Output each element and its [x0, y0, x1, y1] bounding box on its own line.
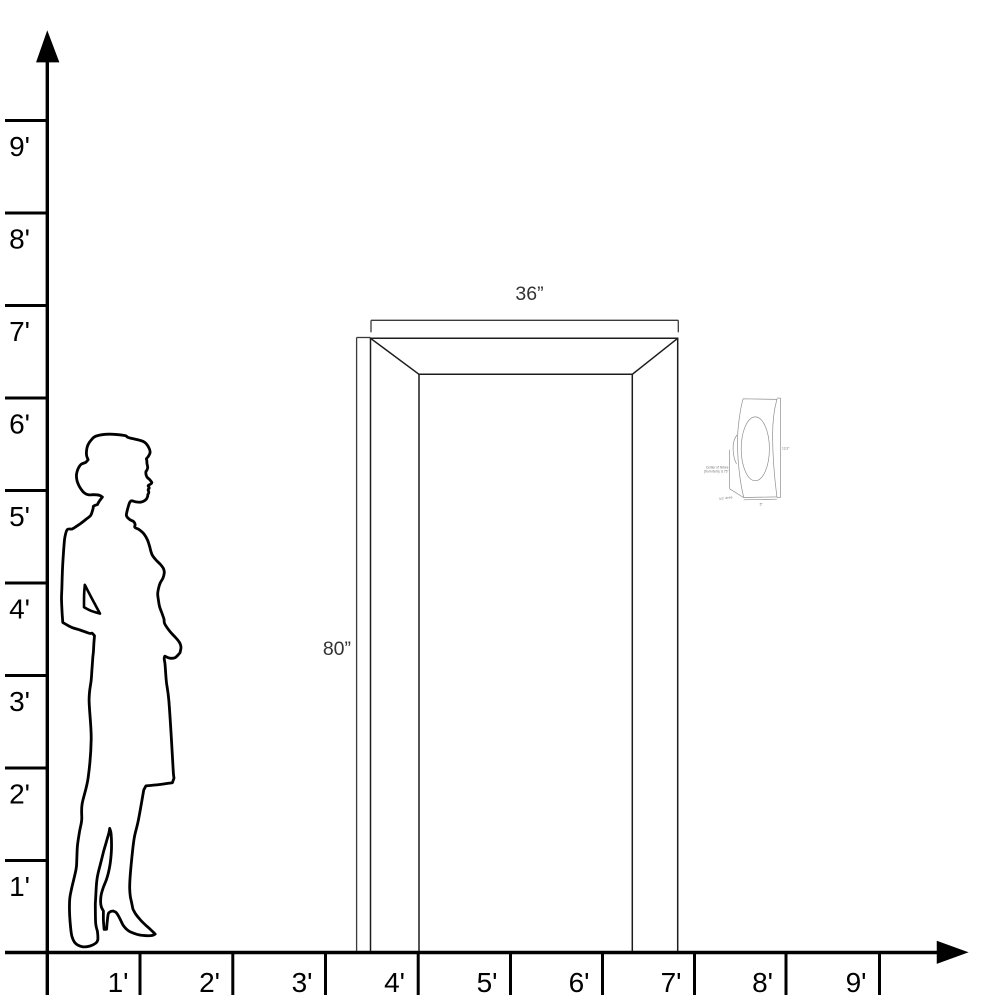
svg-text:7': 7' [9, 316, 30, 347]
svg-text:9': 9' [9, 131, 30, 162]
svg-text:8': 8' [752, 967, 773, 998]
svg-text:6': 6' [569, 967, 590, 998]
svg-text:5”: 5” [760, 503, 763, 507]
svg-text:8': 8' [9, 224, 30, 255]
svg-text:7': 7' [661, 967, 682, 998]
svg-text:5': 5' [477, 967, 498, 998]
svg-text:4': 4' [384, 967, 405, 998]
svg-text:80”: 80” [323, 638, 351, 660]
svg-text:5': 5' [9, 501, 30, 532]
svg-text:(from item): 6.75”: (from item): 6.75” [704, 470, 728, 474]
svg-text:3': 3' [292, 967, 313, 998]
svg-text:2': 2' [9, 779, 30, 810]
svg-text:9': 9' [846, 967, 867, 998]
svg-text:4': 4' [9, 594, 30, 625]
svg-text:36”: 36” [515, 283, 543, 305]
svg-text:3': 3' [9, 686, 30, 717]
svg-text:1': 1' [9, 871, 30, 902]
svg-text:2': 2' [199, 967, 220, 998]
svg-text:6': 6' [9, 409, 30, 440]
svg-text:1': 1' [108, 967, 129, 998]
svg-text:13.3”: 13.3” [782, 447, 789, 451]
